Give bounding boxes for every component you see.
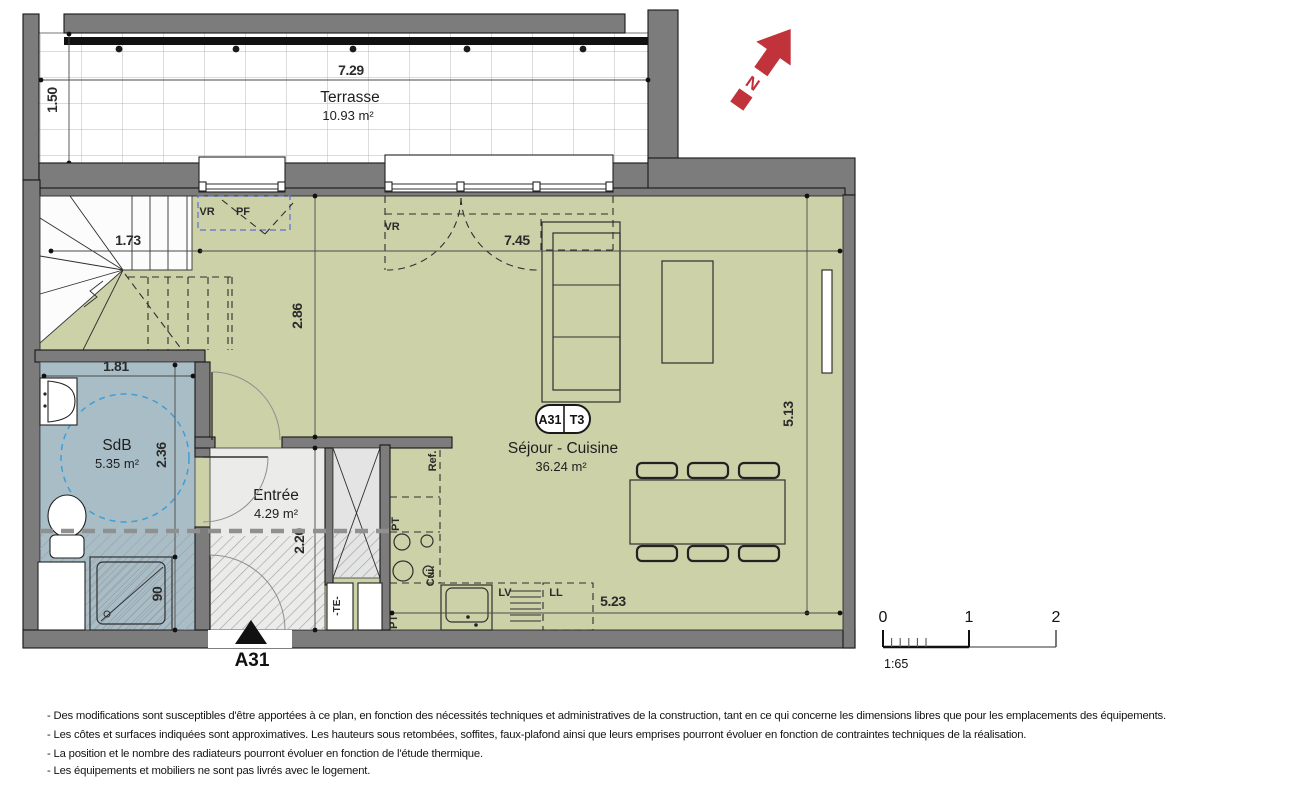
wall-closet-left xyxy=(325,448,333,585)
dim-terrace-depth: 1.50 xyxy=(44,87,60,113)
badge-unit: A31 xyxy=(539,413,562,427)
worktop-lower-label: PT xyxy=(388,615,400,629)
sdb-area: 5.35 m² xyxy=(95,456,140,471)
closet: -TE- xyxy=(325,445,390,630)
terrace-name: Terrasse xyxy=(320,89,379,106)
fridge-label: Ref. xyxy=(427,451,439,472)
worktop-upper-label: PT xyxy=(390,517,402,531)
entry-area: 4.29 m² xyxy=(254,506,299,521)
bathroom-cabinet xyxy=(38,562,85,630)
sejour-area: 36.24 m² xyxy=(535,459,587,474)
dim-sdb-depth: 2.36 xyxy=(153,442,169,468)
sdb-name: SdB xyxy=(102,437,131,454)
dishwasher-label: LV xyxy=(498,587,512,599)
scale-0: 0 xyxy=(879,609,888,626)
electrical-label: -TE- xyxy=(332,596,343,615)
wall-bottom xyxy=(23,630,855,648)
wall-right xyxy=(843,195,855,648)
bathroom: SdB 5.35 m² 1.81 2.36 90 xyxy=(35,350,210,632)
window-pf xyxy=(199,157,285,192)
hob-label: Cui. xyxy=(425,566,437,587)
scale-2: 2 xyxy=(1052,609,1061,626)
terrace-right-wall xyxy=(648,10,678,163)
footer-line-3: - La position et le nombre des radiateur… xyxy=(47,748,483,760)
washbasin xyxy=(40,378,77,425)
north-arrow-icon: N xyxy=(720,17,808,118)
wall-sdb-right-lower xyxy=(195,527,210,630)
footer-line-4: - Les équipements et mobiliers ne sont p… xyxy=(47,765,370,777)
dim-sdb-width: 1.81 xyxy=(103,358,129,374)
terrace-left-wall xyxy=(23,14,39,180)
dim-sejour-right: 5.13 xyxy=(780,401,796,427)
badge-type: T3 xyxy=(570,413,585,427)
terrace-top-wall xyxy=(64,14,625,33)
floor-plan-drawing: Terrasse 10.93 m² 7.29 1.50 xyxy=(0,0,1301,800)
scale-1: 1 xyxy=(965,609,974,626)
dim-stairs-width: 1.73 xyxy=(115,232,141,248)
vr-small-label: VR xyxy=(199,206,214,218)
entrance-label: A31 xyxy=(235,650,270,671)
footer-notes: - Des modifications sont susceptibles d'… xyxy=(47,710,1166,777)
scale-bar: 0 1 2 1:65 xyxy=(879,609,1061,671)
radiator xyxy=(822,270,832,373)
dim-terrace-width: 7.29 xyxy=(338,62,364,78)
terrace-railing xyxy=(64,37,650,45)
scale-ratio: 1:65 xyxy=(884,657,908,671)
dim-sejour-left: 2.86 xyxy=(289,303,305,329)
dim-shower-width: 90 xyxy=(149,586,165,601)
terrace-area: 10.93 m² xyxy=(322,108,374,123)
technical-box xyxy=(358,583,382,630)
closet-hatch xyxy=(333,531,380,577)
scale-minor-ticks xyxy=(892,638,926,647)
sejour-name: Séjour - Cuisine xyxy=(508,440,618,457)
footer-line-1: - Des modifications sont susceptibles d'… xyxy=(47,710,1166,722)
dim-kitchen-run: 5.23 xyxy=(600,593,626,609)
wall-entry-top-right xyxy=(282,437,452,448)
washer-label: LL xyxy=(549,587,563,599)
footer-line-2: - Les côtes et surfaces indiquées sont a… xyxy=(47,729,1026,741)
vr-large-label: VR xyxy=(384,221,399,233)
entry-hatch-zone xyxy=(210,536,325,630)
window-bay xyxy=(385,155,613,192)
dim-sejour-width: 7.45 xyxy=(504,232,530,248)
north-label: N xyxy=(742,72,763,95)
unit-badge: A31 T3 xyxy=(536,405,590,433)
toilet xyxy=(48,495,86,558)
floor-plan-sheet: Terrasse 10.93 m² 7.29 1.50 xyxy=(0,0,1301,800)
windows xyxy=(199,155,613,192)
